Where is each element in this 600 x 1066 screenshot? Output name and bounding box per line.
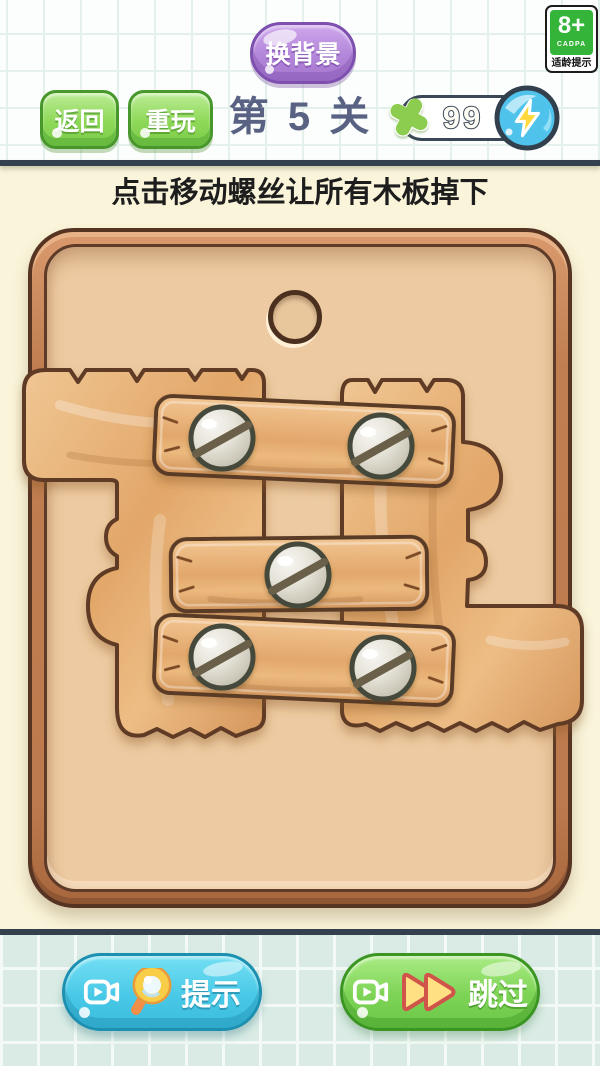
top-separator (0, 160, 600, 166)
screw-head[interactable] (191, 626, 253, 688)
hint-label: 提示 (181, 970, 241, 1014)
video-ad-icon (352, 976, 390, 1008)
age-rating-value: 8+ (550, 12, 593, 40)
skip-label: 跳过 (468, 970, 528, 1014)
bottom-bar: 提示 跳过 (0, 935, 600, 1066)
level-title: 第 5 关 (211, 93, 391, 141)
replay-label: 重玩 (145, 102, 195, 138)
age-rating-org: CADPA (550, 40, 593, 49)
hint-button[interactable]: 提示 (62, 953, 262, 1031)
age-rating-green-panel: 8+ CADPA (550, 10, 593, 55)
magnifier-icon (129, 968, 173, 1016)
energy-coin-button[interactable] (493, 84, 561, 152)
screw-head[interactable] (352, 637, 414, 699)
replay-button[interactable]: 重玩 (128, 90, 213, 149)
game-screen: 点击移动螺丝让所有木板掉下 (0, 0, 600, 1066)
plus-sparkle-icon (386, 94, 432, 140)
screw-head[interactable] (267, 544, 329, 606)
back-button[interactable]: 返回 (40, 90, 119, 149)
screw-head[interactable] (350, 415, 412, 477)
age-rating-tip: 适龄提示 (547, 54, 596, 69)
change-background-button[interactable]: 换背景 (250, 22, 356, 84)
video-ad-icon (83, 976, 121, 1008)
lightning-coin-icon (493, 84, 561, 152)
bottom-separator (0, 929, 600, 935)
skip-button[interactable]: 跳过 (340, 953, 540, 1031)
fast-forward-icon (398, 970, 460, 1014)
age-rating-badge: 8+ CADPA 适龄提示 (545, 5, 598, 73)
back-label: 返回 (54, 102, 104, 138)
top-bar: 换背景 返回 重玩 第 5 关 99 8+ CADPA (0, 0, 600, 160)
change-background-label: 换背景 (265, 35, 340, 71)
screw-head[interactable] (191, 407, 253, 469)
